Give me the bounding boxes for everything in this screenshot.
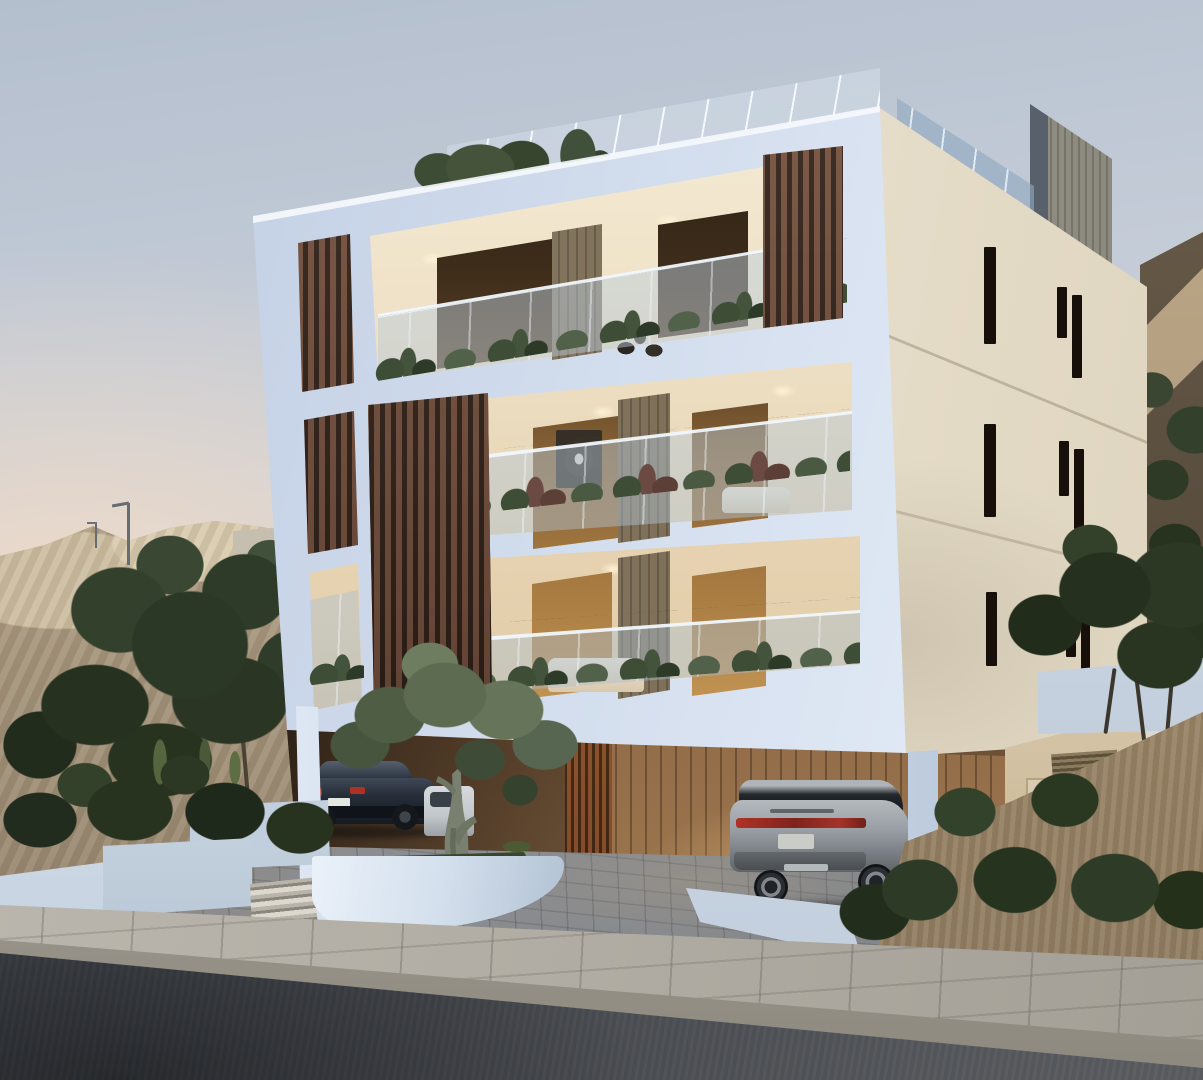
architectural-render-scene — [0, 0, 1203, 1080]
